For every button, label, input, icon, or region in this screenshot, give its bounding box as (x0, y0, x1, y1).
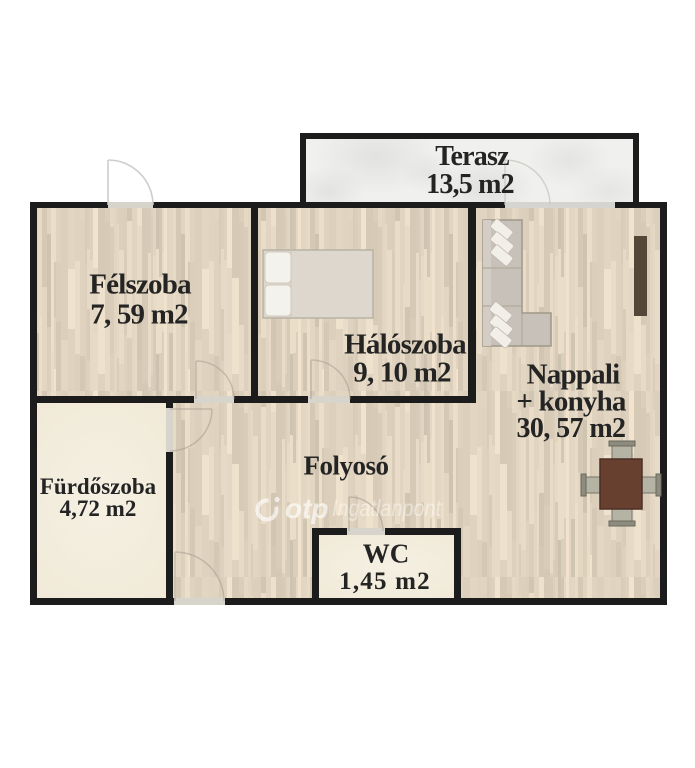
svg-text:otp: otp (285, 493, 329, 524)
svg-text:Ingatlanpont: Ingatlanpont (332, 495, 442, 521)
